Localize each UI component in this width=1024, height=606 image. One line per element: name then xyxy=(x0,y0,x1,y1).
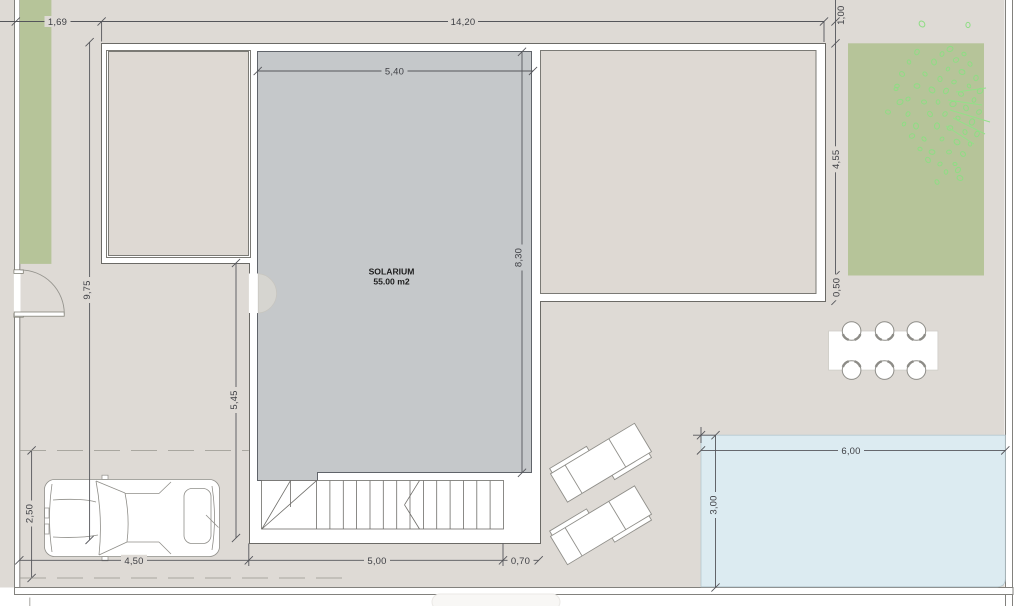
svg-text:4,55: 4,55 xyxy=(831,150,842,169)
svg-text:SOLARIUM: SOLARIUM xyxy=(369,267,415,277)
svg-text:4,50: 4,50 xyxy=(124,556,143,567)
svg-text:55.00 m2: 55.00 m2 xyxy=(373,277,410,287)
svg-text:2,50: 2,50 xyxy=(25,504,36,523)
svg-text:1,69: 1,69 xyxy=(48,17,67,28)
svg-text:8,30: 8,30 xyxy=(514,248,525,267)
svg-text:1,00: 1,00 xyxy=(836,6,847,25)
svg-text:9,75: 9,75 xyxy=(82,280,93,299)
svg-text:0,70: 0,70 xyxy=(511,556,530,567)
svg-text:5,40: 5,40 xyxy=(385,67,404,78)
svg-text:5,00: 5,00 xyxy=(367,556,386,567)
svg-text:0,50: 0,50 xyxy=(832,278,843,297)
svg-text:6,00: 6,00 xyxy=(841,446,860,457)
svg-text:14,20: 14,20 xyxy=(451,17,476,28)
svg-text:5,45: 5,45 xyxy=(229,390,240,409)
svg-text:3,00: 3,00 xyxy=(709,495,720,514)
